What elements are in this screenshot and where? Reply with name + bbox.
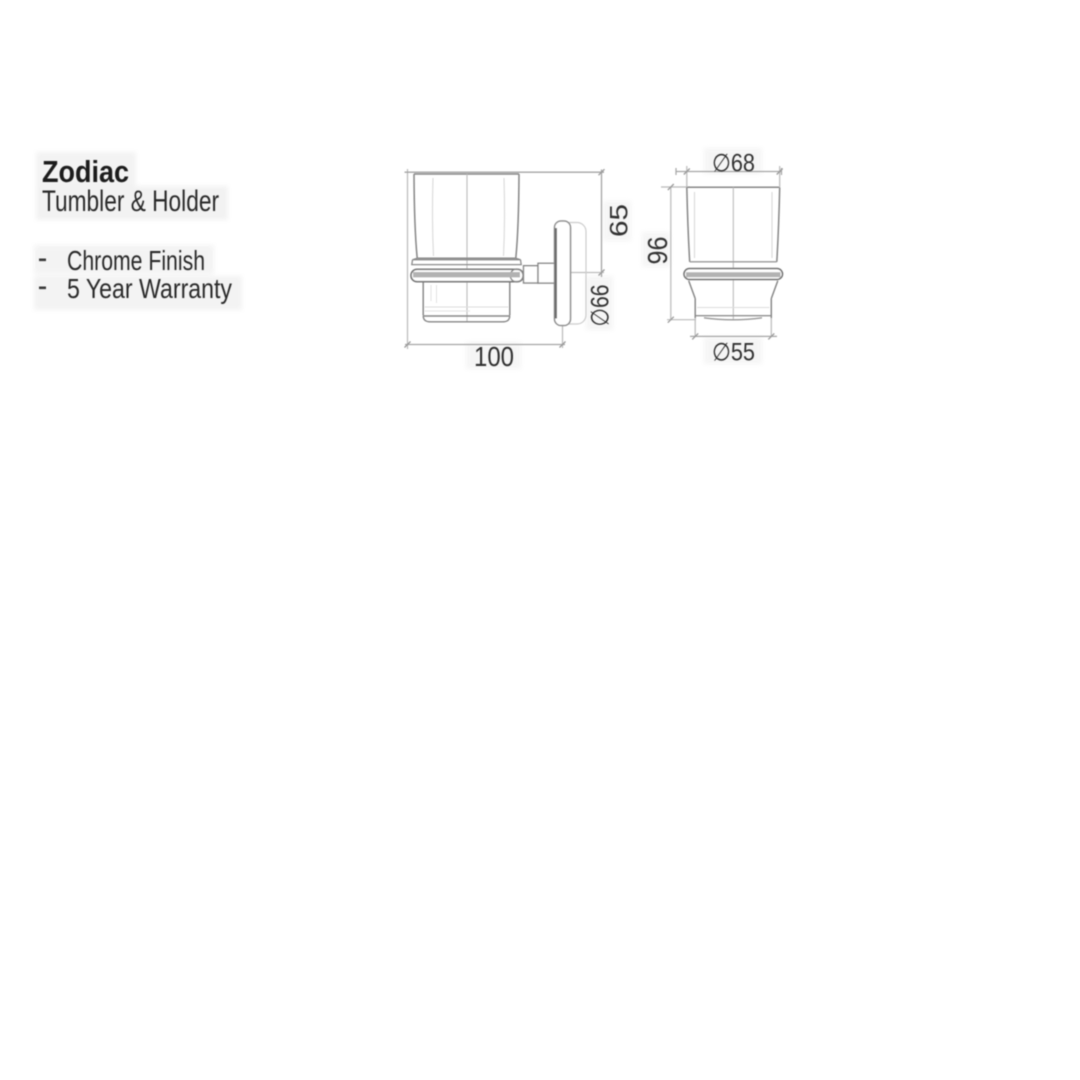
svg-text:65: 65 bbox=[606, 204, 634, 237]
svg-text:Chrome Finish: Chrome Finish bbox=[67, 245, 205, 276]
svg-text:100: 100 bbox=[474, 341, 514, 372]
svg-text:∅66: ∅66 bbox=[587, 285, 615, 327]
svg-text:Zodiac: Zodiac bbox=[42, 154, 129, 189]
svg-text:5 Year Warranty: 5 Year Warranty bbox=[67, 273, 232, 304]
svg-text:96: 96 bbox=[642, 237, 673, 265]
svg-text:Tumbler & Holder: Tumbler & Holder bbox=[42, 185, 219, 218]
svg-text:∅55: ∅55 bbox=[712, 339, 755, 367]
svg-text:∅68: ∅68 bbox=[712, 150, 755, 178]
